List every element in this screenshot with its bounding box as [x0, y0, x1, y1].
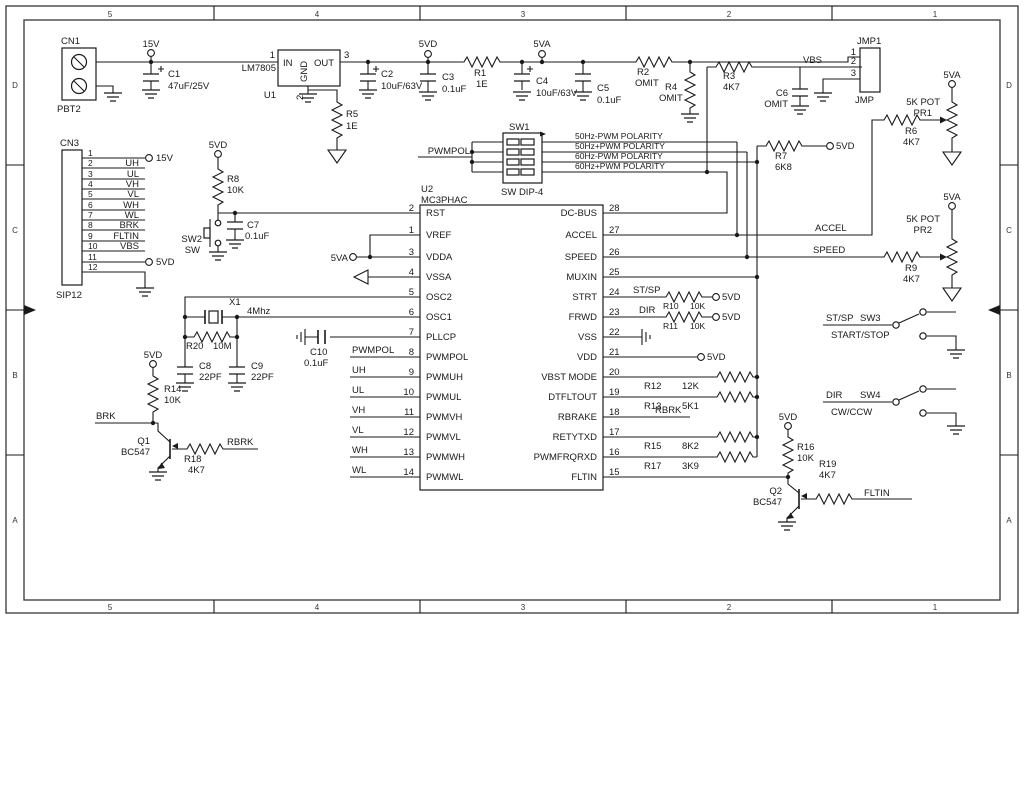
zone-col: 5 — [108, 10, 113, 19]
pin-name: MUXIN — [566, 272, 597, 283]
x1-val-label: 4Mhz — [247, 306, 270, 317]
c1-val-label: 47uF/25V — [168, 81, 210, 92]
net-5vd-label: 5VD — [779, 412, 798, 423]
pin-num: 13 — [403, 447, 414, 458]
pin-num: 3 — [409, 247, 414, 258]
r9-val-label: 4K7 — [903, 274, 920, 285]
oscillator-circuit: 5VA X1 4Mhz R20 10M C8 22PF C9 22PF C10 … — [176, 235, 420, 391]
pr1-wiper-arrow — [940, 117, 947, 124]
zone-col: 5 — [108, 603, 113, 612]
reset-circuit: 5VD R8 10K C7 0.1uF SW2 SW — [181, 140, 420, 260]
zone-col: 4 — [315, 10, 320, 19]
r19-resistor — [812, 494, 856, 504]
r9-resistor — [880, 252, 924, 262]
r16-resistor — [783, 433, 793, 477]
pin-name: ACCEL — [565, 230, 597, 241]
pin-name: FLTIN — [571, 472, 597, 483]
dip-switch-4[interactable] — [507, 169, 519, 175]
cn1-part-label: PBT2 — [57, 104, 81, 115]
jmp1-pin2-num: 2 — [851, 56, 856, 67]
terminal-5vd — [698, 354, 705, 361]
net-5va-label: 5VA — [331, 253, 349, 264]
zone-col: 2 — [727, 603, 732, 612]
sw3-throw[interactable] — [920, 309, 926, 315]
pin-name: OSC1 — [426, 312, 452, 323]
pin-num: 14 — [403, 467, 414, 478]
terminal-5va — [949, 81, 956, 88]
r12-val-label: 12K — [682, 381, 700, 392]
net-5va-label: 5VA — [533, 39, 551, 50]
pr2-pot[interactable] — [947, 235, 957, 279]
net-wh-label: WH — [352, 445, 368, 456]
pin-name: DC-BUS — [561, 208, 597, 219]
net-5vd-label: 5VD — [209, 140, 228, 151]
polarity-row-label: 60Hz-PWM POLARITY — [575, 151, 663, 161]
r15-val-label: 8K2 — [682, 441, 699, 452]
net-5vd-label: 5VD — [722, 312, 741, 323]
zone-row: D — [12, 81, 18, 90]
net-fltin-label: FLTIN — [864, 488, 890, 499]
terminal-5va — [539, 51, 546, 58]
q2-base-arrow — [801, 493, 807, 499]
jmp1-pin3-num: 3 — [851, 68, 856, 79]
r16-ref-label: R16 — [797, 442, 814, 453]
r2-ref-label: R2 — [637, 67, 649, 78]
r18-resistor — [183, 444, 227, 454]
net-5vd-label: 5VD — [836, 141, 855, 152]
terminal-5vd — [150, 361, 157, 368]
x1-ref-label: X1 — [229, 297, 241, 308]
r6-ref-label: R6 — [905, 126, 917, 137]
pin-name: VDD — [577, 352, 597, 363]
dip-switch-2[interactable] — [521, 149, 534, 155]
c4-ref-label: C4 — [536, 76, 548, 87]
sw3-ref-label: SW3 — [860, 313, 881, 324]
r2-resistor — [632, 57, 676, 67]
net-dir-label: DIR — [639, 305, 656, 316]
net-pwmpol-label: PWMPOL — [428, 146, 470, 157]
ic-right-wiring: ACCEL SPEED ST/SP 5VD R10 10K DIR 5VD R1… — [603, 120, 880, 477]
pin-num: 28 — [609, 203, 620, 214]
pin-num: 6 — [409, 307, 414, 318]
pin-name: PWMWH — [426, 452, 465, 463]
net-dir-label: DIR — [826, 390, 843, 401]
c2-ref-label: C2 — [381, 69, 393, 80]
r14-ref-label: R14 — [164, 384, 181, 395]
pr2-wiper-arrow — [940, 254, 947, 261]
pin-name: PWMVL — [426, 432, 461, 443]
c9-val-label: 22PF — [251, 372, 274, 383]
net-vbs-label: VBS — [803, 55, 822, 66]
pin-name: PWMWL — [426, 472, 463, 483]
r7-resistor — [762, 141, 806, 151]
pin-num: 12 — [403, 427, 414, 438]
r15-resistor — [713, 432, 757, 442]
zone-row: A — [1006, 516, 1012, 525]
sw2-contact[interactable] — [215, 240, 221, 246]
pin-name: RBRAKE — [558, 412, 597, 423]
brake-transistor-circuit: 5VD R14 10K BRK Q1 BC547 R18 4K7 RBRK — [95, 350, 258, 480]
pin-num: 1 — [409, 225, 414, 236]
net-5vd-label: 5VD — [722, 292, 741, 303]
r5-ref-label: R5 — [346, 109, 358, 120]
terminal-5vd — [827, 143, 834, 150]
r3-ref-label: R3 — [723, 71, 735, 82]
q1-part-label: BC547 — [121, 447, 150, 458]
pin-num: 25 — [609, 267, 620, 278]
polarity-row-label: 50Hz-PWM POLARITY — [575, 131, 663, 141]
net-rbrk-label: RBRK — [227, 437, 254, 448]
pin-name: VSS — [578, 332, 597, 343]
pin-num: 2 — [409, 203, 414, 214]
zone-row: C — [12, 226, 18, 235]
pin-name: PWMVH — [426, 412, 463, 423]
terminal-5vd — [713, 314, 720, 321]
sw2-ref-label: SW2 — [181, 234, 202, 245]
fold-arrow-left — [24, 305, 36, 315]
r6-val-label: 4K7 — [903, 137, 920, 148]
u1-pin2-num: 2 — [295, 95, 306, 100]
cn3-pin-num: 3 — [88, 169, 93, 179]
zone-col: 3 — [521, 603, 526, 612]
cn3-net-label: BRK — [119, 220, 139, 231]
u2-part-label: MC3PHAC — [421, 195, 468, 206]
pin-num: 10 — [403, 387, 414, 398]
pin-name: VREF — [426, 230, 452, 241]
pin-name: STRT — [572, 292, 597, 303]
r4-resistor — [685, 68, 695, 112]
r16-val-label: 10K — [797, 453, 815, 464]
zone-row: D — [1006, 81, 1012, 90]
c5-ref-label: C5 — [597, 83, 609, 94]
schematic-canvas: 5 4 3 2 1 5 4 3 2 1 D C B A D C B A CN1 … — [0, 0, 1024, 791]
net-uh-label: UH — [352, 365, 366, 376]
r2-val-label: OMIT — [635, 78, 659, 89]
fold-arrow-right — [988, 305, 1000, 315]
terminal-5vd — [785, 423, 792, 430]
dip-switch-3[interactable] — [521, 159, 534, 165]
cn3-pin-num: 5 — [88, 189, 93, 199]
u1-ref-label: U1 — [264, 90, 276, 101]
r4-ref-label: R4 — [665, 82, 677, 93]
c10-val-label: 0.1uF — [304, 358, 328, 369]
r17-resistor — [713, 452, 757, 462]
sw3-throw[interactable] — [920, 333, 926, 339]
dip-arrow-icon — [540, 132, 546, 137]
polarity-row-label: 50Hz+PWM POLARITY — [575, 141, 665, 151]
pin-name: PWMFRQRXD — [534, 452, 597, 463]
r10-ref-label: R10 — [663, 301, 679, 311]
cn3-net-label: VL — [127, 189, 139, 200]
r4-val-label: OMIT — [659, 93, 683, 104]
r1-resistor — [460, 57, 504, 67]
r5-resistor — [332, 98, 342, 142]
c10-ref-label: C10 — [310, 347, 327, 358]
sw1-ref-label: SW1 — [509, 122, 530, 133]
sw4-throw[interactable] — [920, 386, 926, 392]
pr1-pot[interactable] — [947, 98, 957, 142]
terminal-15v — [148, 50, 155, 57]
dip-switch-2[interactable] — [507, 149, 519, 155]
pin-name: OSC2 — [426, 292, 452, 303]
net-vh-label: VH — [352, 405, 365, 416]
sw4-pole[interactable] — [893, 399, 899, 405]
r13-resistor — [713, 392, 757, 402]
cn3-pin-num: 7 — [88, 210, 93, 220]
pin-num: 5 — [409, 287, 414, 298]
net-rbrk-label: RBRK — [655, 405, 682, 416]
q1-ref-label: Q1 — [137, 436, 150, 447]
c4-val-label: 10uF/63V — [536, 88, 578, 99]
zone-row: C — [1006, 226, 1012, 235]
u1-out-pin-label: OUT — [314, 58, 334, 69]
terminal-5vd — [215, 151, 222, 158]
zone-col: 4 — [315, 603, 320, 612]
sw3-desc-label: START/STOP — [831, 330, 890, 341]
cn3-net-label: VBS — [120, 241, 139, 252]
r7-val-label: 6K8 — [775, 162, 792, 173]
jmp1-ref-label: JMP1 — [857, 36, 881, 47]
zone-col: 3 — [521, 10, 526, 19]
pin-name: PWMPOL — [426, 352, 468, 363]
r18-val-label: 4K7 — [188, 465, 205, 476]
r14-resistor — [148, 372, 158, 416]
speed-accel-pots: 5VA 5K POT PR1 R6 4K7 5VA 5K POT PR2 R9 … — [880, 70, 961, 301]
net-5vd-label: 5VD — [156, 257, 175, 268]
x1-crystal — [205, 310, 222, 324]
cn1-ref-label: CN1 — [61, 36, 80, 47]
sw2-button[interactable] — [204, 228, 210, 238]
pin-num: 9 — [409, 367, 414, 378]
dip-switch-1[interactable] — [507, 139, 519, 145]
cn3-pin-num: 6 — [88, 200, 93, 210]
net-stsp-label: ST/SP — [826, 313, 853, 324]
terminal-5vd — [713, 294, 720, 301]
r6-resistor — [880, 115, 924, 125]
cn3-pin-num: 2 — [88, 158, 93, 168]
terminal-5va — [949, 203, 956, 210]
net-speed-label: SPEED — [813, 245, 845, 256]
terminal-5va — [350, 254, 357, 261]
cn3-ref-label: CN3 — [60, 138, 79, 149]
c7-val-label: 0.1uF — [245, 231, 269, 242]
c1-ref-label: C1 — [168, 69, 180, 80]
c6-val-label: OMIT — [764, 99, 788, 110]
r19-val-label: 4K7 — [819, 470, 836, 481]
r1-ref-label: R1 — [474, 68, 486, 79]
pin-name: PLLCP — [426, 332, 456, 343]
pin-name: PWMUL — [426, 392, 461, 403]
net-accel-label: ACCEL — [815, 223, 847, 234]
cn3-part-label: SIP12 — [56, 290, 82, 301]
sw4-ref-label: SW4 — [860, 390, 881, 401]
zone-col: 1 — [933, 603, 938, 612]
r8-resistor — [213, 165, 223, 209]
cn3-pin-num: 8 — [88, 220, 93, 230]
pin-num: 19 — [609, 387, 620, 398]
zone-row: B — [1006, 371, 1011, 380]
r5-val-label: 1E — [346, 121, 358, 132]
pin-num: 17 — [609, 427, 620, 438]
c6-ref-label: C6 — [776, 88, 788, 99]
terminal-5vd — [425, 51, 432, 58]
pin-name: DTFLTOUT — [548, 392, 597, 403]
ground-rotated-icon — [297, 329, 305, 345]
u1-pin3-num: 3 — [344, 50, 349, 61]
sw1-part-label: SW DIP-4 — [501, 187, 543, 198]
pin-num: 26 — [609, 247, 620, 258]
pin-name: RST — [426, 208, 445, 219]
net-5vd-label: 5VD — [707, 352, 726, 363]
zone-col: 2 — [727, 10, 732, 19]
sw2-part-label: SW — [185, 245, 200, 256]
q2-ref-label: Q2 — [769, 486, 782, 497]
pr2-val-label: 5K POT — [906, 214, 940, 225]
u1-gnd-pin-label: GND — [299, 61, 310, 82]
net-pwmpol-label: PWMPOL — [352, 345, 394, 356]
u2-ref-label: U2 — [421, 184, 433, 195]
u1-in-pin-label: IN — [283, 58, 293, 69]
c10-capacitor — [318, 330, 325, 344]
net-15v-label: 15V — [143, 39, 161, 50]
cn3-pin-num: 9 — [88, 231, 93, 241]
r12-ref-label: R12 — [644, 381, 661, 392]
c5-val-label: 0.1uF — [597, 95, 621, 106]
r1-val-label: 1E — [476, 79, 488, 90]
r3-val-label: 4K7 — [723, 82, 740, 93]
pin-name: VDDA — [426, 252, 453, 263]
pin-name: PWMUH — [426, 372, 463, 383]
q2-emitter-arrow — [787, 513, 794, 520]
r17-val-label: 3K9 — [682, 461, 699, 472]
r11-val-label: 10K — [690, 321, 705, 331]
pin-name: VSSA — [426, 272, 452, 283]
pin-num: 4 — [409, 267, 414, 278]
cn3-pin-num: 1 — [88, 148, 93, 158]
c7-ref-label: C7 — [247, 220, 259, 231]
r17-ref-label: R17 — [644, 461, 661, 472]
pr1-val-label: 5K POT — [906, 97, 940, 108]
sw2-contact[interactable] — [215, 220, 221, 226]
c3-ref-label: C3 — [442, 72, 454, 83]
net-5vd-label: 5VD — [419, 39, 438, 50]
net-5vd-label: 5VD — [144, 350, 163, 361]
analog-ground-arrow — [354, 270, 368, 284]
zone-col: 1 — [933, 10, 938, 19]
pin-num: 21 — [609, 347, 620, 358]
dip-switch-1[interactable] — [521, 139, 534, 145]
c3-val-label: 0.1uF — [442, 84, 466, 95]
cn3-net-label: UH — [125, 158, 139, 169]
r10-val-label: 10K — [690, 301, 705, 311]
q2-part-label: BC547 — [753, 497, 782, 508]
terminal-15v — [146, 155, 153, 162]
net-vl-label: VL — [352, 425, 364, 436]
pin-num: 24 — [609, 287, 620, 298]
pin-num: 16 — [609, 447, 620, 458]
pr2-ref-label: PR2 — [914, 225, 932, 236]
dip-switch-4[interactable] — [521, 169, 534, 175]
u1-pin1-num: 1 — [270, 50, 275, 61]
r8-val-label: 10K — [227, 185, 245, 196]
cn3-pin-num: 10 — [88, 241, 98, 251]
fault-transistor-circuit: 5VD R16 10K Q2 BC547 R19 4K7 FLTIN — [753, 412, 912, 530]
c8-val-label: 22PF — [199, 372, 222, 383]
q1-base-arrow — [172, 443, 178, 449]
r20-ref-label: R20 — [186, 341, 203, 352]
pin-name: VBST MODE — [541, 372, 597, 383]
pin-num: 7 — [409, 327, 414, 338]
schematic-page: 5 4 3 2 1 5 4 3 2 1 D C B A D C B A CN1 … — [0, 0, 1024, 791]
r9-ref-label: R9 — [905, 263, 917, 274]
r19-ref-label: R19 — [819, 459, 836, 470]
net-brk-label: BRK — [96, 411, 116, 422]
zone-row: A — [12, 516, 18, 525]
cn3-pin-num: 12 — [88, 262, 98, 272]
r11-ref-label: R11 — [663, 321, 678, 331]
pin-name: SPEED — [565, 252, 597, 263]
pin-num: 20 — [609, 367, 620, 378]
jmp1-jumper — [860, 48, 880, 92]
r7-ref-label: R7 — [775, 151, 787, 162]
net-ul-label: UL — [352, 385, 364, 396]
cn3-connector: CN3 SIP12 15V 5VD 1 2 3 4 5 6 7 8 9 10 1… — [56, 138, 175, 301]
pin-num: 23 — [609, 307, 620, 318]
q1-emitter-arrow — [158, 463, 165, 470]
sw3-pole[interactable] — [893, 322, 899, 328]
r18-ref-label: R18 — [184, 454, 201, 465]
ground-rotated-icon — [642, 329, 650, 345]
r13-val-label: 5K1 — [682, 401, 699, 412]
net-5va-label: 5VA — [943, 192, 961, 203]
r8-ref-label: R8 — [227, 174, 239, 185]
c9-ref-label: C9 — [251, 361, 263, 372]
pin-name: FRWD — [569, 312, 597, 323]
c8-ref-label: C8 — [199, 361, 211, 372]
pin-num: 22 — [609, 327, 620, 338]
r14-val-label: 10K — [164, 395, 182, 406]
sw4-desc-label: CW/CCW — [831, 407, 872, 418]
pin-num: 15 — [609, 467, 620, 478]
net-15v-label: 15V — [156, 153, 174, 164]
pin-name: RETYTXD — [553, 432, 597, 443]
cn3-pin-num: 11 — [88, 252, 97, 262]
pin-num: 11 — [404, 407, 414, 418]
terminal-5vd — [146, 259, 153, 266]
zone-row: B — [12, 371, 17, 380]
polarity-row-label: 60Hz+PWM POLARITY — [575, 161, 665, 171]
jmp1-part-label: JMP — [855, 95, 874, 106]
r20-val-label: 10M — [213, 341, 232, 352]
pin-num: 27 — [609, 225, 620, 236]
c2-val-label: 10uF/63V — [381, 81, 423, 92]
r12-resistor — [713, 372, 757, 382]
u1-part-label: LM7805 — [242, 63, 276, 74]
cn3-pin-num: 4 — [88, 179, 93, 189]
net-stsp-label: ST/SP — [633, 285, 660, 296]
dip-switch-3[interactable] — [507, 159, 519, 165]
pin-num: 8 — [409, 347, 414, 358]
net-wl-label: WL — [352, 465, 366, 476]
r15-ref-label: R15 — [644, 441, 661, 452]
sw4-throw[interactable] — [920, 410, 926, 416]
net-5va-label: 5VA — [943, 70, 961, 81]
control-switches: ST/SP SW3 START/STOP DIR SW4 CW/CCW — [823, 309, 965, 434]
pin-num: 18 — [609, 407, 620, 418]
